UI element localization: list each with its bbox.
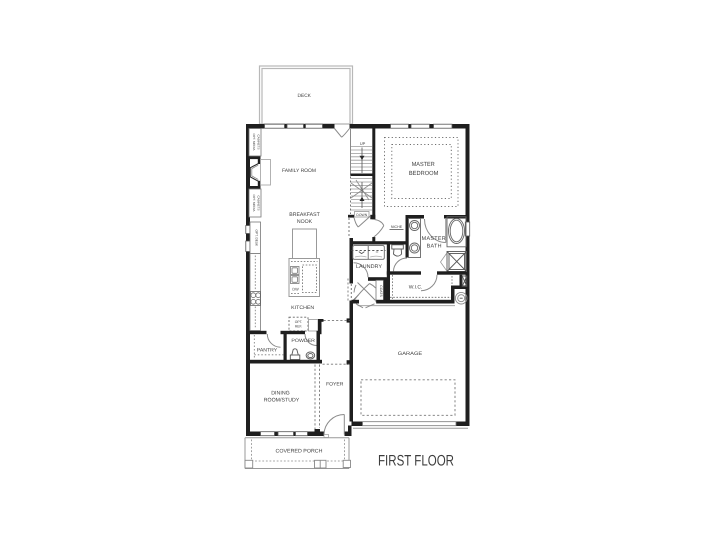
svg-text:OPT. MEDIA: OPT. MEDIA (252, 133, 256, 150)
svg-text:DINING: DINING (271, 391, 290, 397)
svg-text:REF.: REF. (295, 324, 302, 328)
svg-text:DECK: DECK (298, 93, 312, 99)
svg-text:LAUNDRY: LAUNDRY (356, 264, 383, 270)
svg-text:BEDROOM: BEDROOM (409, 170, 439, 177)
svg-text:NICHE: NICHE (391, 225, 403, 229)
svg-text:OPT. DESK: OPT. DESK (255, 229, 259, 247)
svg-text:DW: DW (292, 288, 299, 292)
svg-text:GARAGE: GARAGE (398, 351, 423, 357)
svg-text:POWDER: POWDER (291, 338, 315, 344)
svg-text:KITCHEN: KITCHEN (291, 305, 314, 311)
svg-text:CABINETS: CABINETS (257, 134, 261, 149)
svg-text:FOYER: FOYER (326, 381, 344, 387)
svg-text:CABINETS: CABINETS (257, 195, 261, 210)
svg-text:W.I.C.: W.I.C. (409, 284, 423, 290)
svg-text:BREAKFAST: BREAKFAST (289, 212, 320, 218)
svg-text:FAMILY ROOM: FAMILY ROOM (282, 168, 316, 174)
svg-text:NOOK: NOOK (297, 219, 313, 225)
svg-text:UP: UP (360, 141, 366, 146)
svg-text:DOWN: DOWN (356, 213, 367, 217)
svg-text:ROOM/STUDY: ROOM/STUDY (264, 398, 300, 404)
svg-text:BATH: BATH (427, 243, 442, 249)
svg-text:COVERED PORCH: COVERED PORCH (276, 448, 323, 454)
svg-text:PANTRY: PANTRY (257, 348, 278, 354)
svg-text:MASTER: MASTER (412, 161, 436, 168)
svg-text:OPT. MEDIA: OPT. MEDIA (252, 194, 256, 211)
svg-text:MASTER: MASTER (422, 236, 446, 242)
svg-text:FIRST FLOOR: FIRST FLOOR (378, 453, 454, 470)
svg-text:COATS: COATS (379, 285, 383, 297)
svg-text:OPT.: OPT. (295, 320, 303, 324)
